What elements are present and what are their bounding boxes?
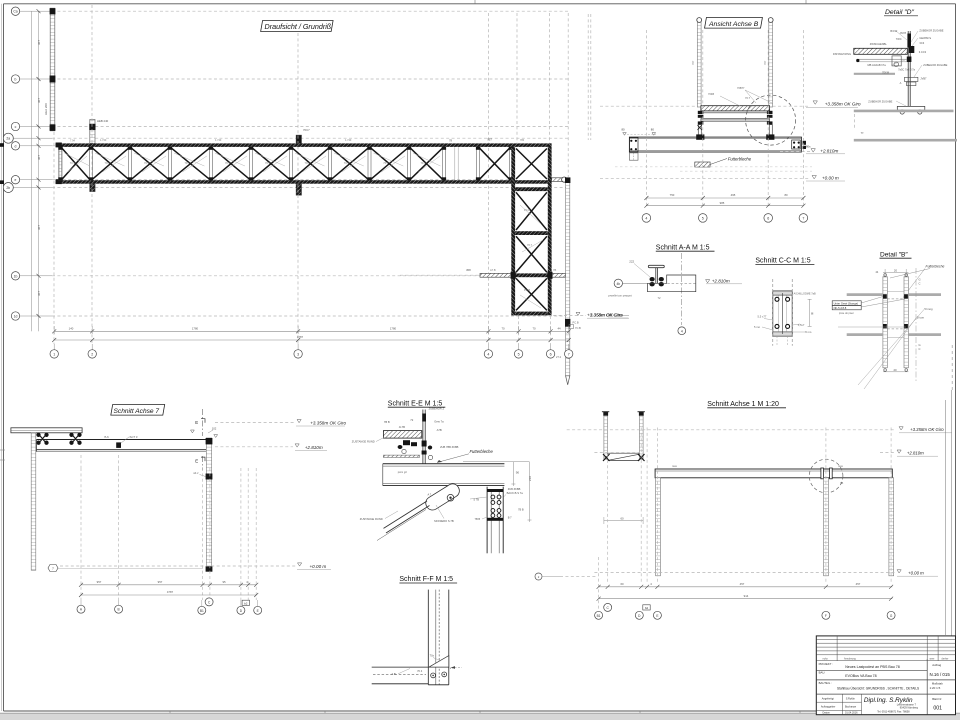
svg-text:E: E (656, 614, 658, 618)
svg-text:70C7: 70C7 (303, 128, 310, 132)
svg-text:G: G (919, 278, 921, 282)
svg-text:7L6: 7L6 (104, 435, 109, 439)
svg-text:+3.358m OK Giro: +3.358m OK Giro (310, 420, 346, 425)
svg-text:ACT 3: ACT 3 (130, 435, 138, 439)
svg-text:5l turn: 5l turn (917, 316, 925, 320)
svg-text:78: 78 (449, 139, 453, 143)
svg-text:90: 90 (516, 471, 520, 475)
svg-text:70.7: 70.7 (305, 161, 311, 165)
svg-text:prwelle tum preppnt: prwelle tum preppnt (608, 294, 632, 298)
svg-text:7a5C 7a3 J.7a: 7a5C 7a3 J.7a (898, 67, 915, 71)
svg-text:70.7: 70.7 (70, 161, 76, 165)
svg-text:8l: 8l (811, 311, 814, 315)
svg-text:B1: B1 (597, 614, 601, 618)
svg-text:3C3: 3C3 (919, 41, 924, 45)
svg-text:BAUTEIL :: BAUTEIL : (819, 681, 832, 685)
svg-text:7: 7 (568, 353, 570, 357)
svg-text:70.7: 70.7 (225, 161, 231, 165)
svg-text:70: 70 (532, 327, 536, 331)
svg-text:ZUSTANGE RUND: ZUSTANGE RUND (360, 517, 383, 521)
svg-text:4787: 4787 (297, 335, 304, 339)
svg-text:7.94: 7.94 (70, 140, 75, 143)
svg-text:prwe do pwer: prwe do pwer (839, 312, 854, 315)
svg-text:1.740: 1.740 (100, 139, 107, 142)
svg-text:PROJEKT :: PROJEKT : (819, 662, 834, 666)
svg-text:7WC: 7WC (896, 37, 902, 41)
svg-text:80: 80 (651, 127, 655, 131)
svg-text:EVOBus VA Bau 78: EVOBus VA Bau 78 (845, 674, 877, 678)
svg-text:+2.810m: +2.810m (820, 149, 838, 154)
svg-text:F: F (825, 614, 827, 618)
svg-text:5: 5 (702, 217, 704, 221)
svg-text:957: 957 (158, 580, 163, 584)
svg-text:1.740: 1.740 (215, 139, 222, 142)
svg-text:985: 985 (720, 201, 725, 205)
svg-text:780: 780 (520, 139, 525, 142)
svg-text:Neues Lastpodest an PBS Bau 78: Neues Lastpodest an PBS Bau 78 (845, 665, 900, 669)
svg-text:+0.00 m: +0.00 m (908, 571, 924, 576)
svg-text:Bocharow: Bocharow (845, 705, 856, 708)
svg-text:7B B: 7B B (475, 517, 481, 521)
svg-text:70.7: 70.7 (383, 161, 389, 165)
svg-text:7EKM: 7EKM (882, 71, 889, 75)
svg-text:+2.810m: +2.810m (712, 278, 730, 283)
svg-text:3.358m OK Giro: 3.358m OK Giro (590, 312, 622, 317)
svg-text:E: E (195, 420, 198, 425)
svg-text:B1: B1 (200, 609, 204, 613)
svg-text:6: 6 (767, 217, 769, 221)
svg-text:d: d (15, 144, 17, 148)
svg-text:A7.B: A7.B (490, 268, 496, 272)
svg-text:72: 72 (410, 418, 413, 422)
svg-text:60: 60 (620, 582, 624, 586)
svg-text:495: 495 (731, 193, 736, 197)
svg-text:707: 707 (763, 60, 767, 65)
svg-text:Stahlbau Übersicht: GRUNDRISS: Stahlbau Übersicht: GRUNDRISS , SCHNITTE… (837, 687, 919, 691)
svg-text:458: 458 (466, 268, 471, 272)
svg-text:7B B: 7B B (518, 508, 524, 512)
svg-text:222: 222 (629, 259, 634, 263)
svg-text:B: B (118, 608, 120, 612)
svg-text:5 mo: 5 mo (805, 330, 811, 334)
svg-text:E: E (257, 609, 259, 613)
svg-text:70.7: 70.7 (420, 161, 426, 165)
svg-text:5,5 x77: 5,5 x77 (758, 315, 767, 319)
svg-text:Blatt Nr: Blatt Nr (932, 697, 941, 701)
svg-text:ZUBEHOR Z: ZUBEHOR Z (429, 407, 445, 411)
svg-text:44: 44 (557, 327, 561, 331)
svg-text:70x: 70x (430, 653, 435, 657)
svg-text:70.7: 70.7 (344, 161, 350, 165)
svg-text:5 mo: 5 mo (754, 325, 760, 329)
svg-text:2a: 2a (6, 137, 10, 141)
svg-text:20: 20 (894, 268, 898, 272)
svg-text:77.: 77. (861, 131, 865, 135)
svg-text:Auftrag: Auftrag (932, 663, 941, 667)
svg-text:ZUBEHOR ZUGABE: ZUBEHOR ZUGABE (923, 63, 947, 67)
svg-text:70.7: 70.7 (105, 161, 111, 165)
svg-text:27.2: 27.2 (556, 355, 562, 359)
svg-text:20: 20 (894, 368, 898, 372)
svg-text:Schnitt C-C M 1:5: Schnitt C-C M 1:5 (755, 258, 810, 265)
svg-text:457: 457 (856, 582, 861, 586)
svg-text:140: 140 (69, 327, 74, 331)
svg-text:echo: echo (823, 658, 829, 661)
svg-text:c: c (15, 125, 17, 129)
svg-text:Futterbleche: Futterbleche (728, 156, 752, 161)
svg-text:70.7: 70.7 (144, 161, 150, 165)
svg-text:+0.00 m: +0.00 m (822, 176, 839, 181)
svg-text:+2.810m: +2.810m (305, 445, 323, 450)
svg-text:70.7: 70.7 (527, 243, 533, 247)
svg-text:Draufsicht / Grundriß: Draufsicht / Grundriß (265, 22, 332, 31)
svg-text:B/CW: B/CW (890, 29, 897, 33)
svg-text:7B: 7B (553, 268, 556, 272)
svg-text:MONIERO S.7B: MONIERO S.7B (434, 519, 454, 523)
svg-text:457: 457 (740, 582, 745, 586)
svg-text:max: max (672, 465, 678, 468)
svg-text:70 4: 70 4 (417, 669, 423, 673)
svg-text:b: b (15, 78, 17, 82)
svg-text:Maßstab: Maßstab (932, 682, 943, 686)
svg-text:72: 72 (658, 296, 661, 300)
svg-text:E: E (195, 459, 198, 464)
svg-text:A/CHILLODME 7aB: A/CHILLODME 7aB (794, 293, 816, 296)
svg-text:70.7: 70.7 (265, 161, 271, 165)
svg-text:NF-5 d 8.8: NF-5 d 8.8 (834, 306, 847, 310)
svg-text:Futterbleche: Futterbleche (470, 449, 494, 454)
svg-text:704B: 704B (708, 92, 714, 96)
svg-text:7B7: 7B7 (487, 138, 492, 142)
svg-text:Schnitt A-A M 1:5: Schnitt A-A M 1:5 (656, 244, 710, 251)
svg-text:Ca: Ca (13, 10, 17, 14)
svg-text:750: 750 (670, 193, 675, 197)
svg-text:914: 914 (744, 594, 749, 598)
svg-text:PC.B: PC.B (573, 321, 579, 325)
svg-text:pwm grt: pwm grt (398, 470, 408, 474)
svg-text:80s: 80s (806, 145, 811, 149)
svg-text:Datum: Datum (823, 711, 830, 714)
svg-text:307: 307 (37, 225, 41, 230)
svg-text:2b: 2b (6, 186, 10, 190)
svg-text:7B B: 7B B (384, 420, 390, 424)
svg-text:ZUSTANGE RUND: ZUSTANGE RUND (352, 440, 375, 444)
svg-text:Tel. 0911-458671 Fax: 78658: Tel. 0911-458671 Fax: 78658 (877, 711, 910, 714)
svg-text:max: max (838, 465, 844, 468)
svg-text:+3.358m OK Giro: +3.358m OK Giro (825, 101, 861, 106)
svg-text:5l mog: 5l mog (924, 307, 933, 311)
svg-text:Schnitt Achse 7: Schnitt Achse 7 (114, 408, 160, 415)
svg-text:1d: 1d (14, 315, 18, 319)
svg-text:7: 7 (802, 217, 804, 221)
svg-text:N.16 / 015: N.16 / 015 (930, 672, 951, 677)
svg-text:Unter Gewi (Stange): Unter Gewi (Stange) (834, 301, 859, 305)
svg-text:Schnitt F-F M 1:5: Schnitt F-F M 1:5 (399, 576, 453, 583)
svg-text:BACK.B.S 7a: BACK.B.S 7a (507, 491, 524, 495)
svg-text:2: 2 (91, 353, 93, 357)
svg-text:307: 307 (37, 40, 41, 45)
svg-text:d.B: d.B (392, 672, 396, 676)
svg-text:957: 957 (97, 580, 102, 584)
svg-text:HEB 240: HEB 240 (97, 119, 109, 123)
svg-text:ZUB ZKBB: ZUB ZKBB (508, 487, 521, 491)
svg-text:70.7: 70.7 (184, 161, 190, 165)
svg-text:60: 60 (621, 516, 625, 520)
svg-text:70.7: 70.7 (745, 96, 751, 100)
svg-text:Detail ″B″: Detail ″B″ (880, 251, 908, 258)
svg-text:707: 707 (691, 60, 695, 65)
svg-text:e: e (15, 178, 17, 182)
svg-text:JNY8: JNY8 (900, 31, 907, 35)
svg-text:b2: b2 (645, 606, 649, 610)
svg-text:b2: b2 (244, 601, 248, 605)
svg-text:JVB7: JVB7 (920, 77, 927, 81)
svg-text:1: 1 (53, 353, 55, 357)
svg-text:Schnitt Achse 1 M 1:20: Schnitt Achse 1 M 1:20 (707, 401, 779, 408)
svg-text:A7B: A7B (437, 428, 442, 432)
svg-text:Gew 7a: Gew 7a (434, 420, 444, 424)
svg-text:C: C (919, 347, 921, 351)
svg-text:Angefertigt: Angefertigt (822, 698, 834, 701)
svg-text:95: 95 (222, 580, 226, 584)
svg-text:Aenderung: Aenderung (844, 658, 856, 661)
svg-text:ZWISCHENBL: ZWISCHENBL (870, 42, 888, 46)
svg-text:4: 4 (487, 353, 489, 357)
svg-text:ZUBEHOR ZUGABE: ZUBEHOR ZUGABE (919, 29, 943, 33)
svg-text:+2.810m: +2.810m (907, 451, 924, 456)
svg-text:DISTANZ RING: DISTANZ RING (833, 52, 851, 56)
svg-text:A: A (900, 81, 902, 85)
svg-text:sb z: sb z (193, 471, 199, 475)
svg-text:+0.00 m: +0.00 m (310, 564, 327, 569)
svg-text:80: 80 (622, 127, 626, 131)
svg-text:JL7B: JL7B (399, 425, 405, 429)
svg-text:1:20 1:5: 1:20 1:5 (930, 686, 941, 690)
svg-text:80: 80 (784, 193, 788, 197)
svg-text:307: 307 (37, 155, 41, 160)
svg-text:derher: derher (942, 658, 949, 661)
svg-text:MB AGhAB h7a: MB AGhAB h7a (868, 63, 887, 67)
svg-text:7C.B: 7C.B (575, 326, 581, 330)
svg-text:4b: 4b (617, 282, 621, 286)
svg-text:4: 4 (681, 329, 683, 333)
svg-text:ZUB 7BB ZKBB: ZUB 7BB ZKBB (440, 445, 459, 449)
svg-text:3.CC3: 3.CC3 (919, 50, 927, 54)
svg-text:6: 6 (550, 353, 552, 357)
svg-text:PC.B: PC.B (524, 288, 530, 292)
svg-text:C: C (919, 282, 921, 286)
svg-text:B 7: B 7 (508, 516, 512, 520)
svg-text:5: 5 (518, 353, 520, 357)
svg-text:GEWIN7a: GEWIN7a (919, 36, 931, 40)
svg-text:5,5x7: 5,5x7 (798, 323, 805, 327)
svg-text:1b: 1b (14, 274, 18, 278)
svg-text:A 7: A 7 (428, 493, 432, 497)
svg-text:1.740: 1.740 (345, 139, 352, 142)
svg-text:70B77: 70B77 (737, 86, 745, 90)
svg-text:BAU:: BAU: (819, 670, 826, 674)
svg-text:70: 70 (501, 327, 505, 331)
svg-text:1780: 1780 (192, 327, 199, 331)
svg-text:S.Ryklin: S.Ryklin (846, 698, 856, 701)
svg-text:Futterbleche: Futterbleche (926, 265, 945, 269)
svg-text:Auftraggeber: Auftraggeber (821, 705, 836, 708)
svg-text:4: 4 (645, 217, 647, 221)
svg-text:90429 Nürnberg: 90429 Nürnberg (900, 706, 919, 709)
svg-text:Ansicht Achse B: Ansicht Achse B (708, 21, 759, 28)
svg-text:3: 3 (297, 353, 299, 357)
svg-text:1780: 1780 (390, 327, 397, 331)
svg-text:G: G (919, 343, 921, 347)
svg-text:001: 001 (933, 705, 942, 711)
svg-text:HEA 200: HEA 200 (44, 103, 48, 115)
svg-text:7B: 7B (840, 481, 843, 485)
svg-text:ZUBEHOR ZUGABE: ZUBEHOR ZUGABE (868, 99, 892, 103)
svg-text:4787: 4787 (167, 590, 174, 594)
svg-text:PC.B: PC.B (524, 208, 530, 212)
svg-text:307: 307 (37, 98, 41, 103)
svg-text:210: 210 (528, 476, 532, 481)
svg-text:307: 307 (37, 291, 41, 296)
svg-text:102: 102 (212, 427, 217, 431)
svg-text:wwe: wwe (930, 658, 935, 661)
svg-text:+3.358m OK Giro: +3.358m OK Giro (910, 427, 944, 432)
svg-text:Detail ″D″: Detail ″D″ (885, 9, 915, 16)
svg-text:Schnitt E-E M 1:5: Schnitt E-E M 1:5 (388, 400, 443, 407)
svg-text:01.04.2016: 01.04.2016 (845, 711, 858, 714)
